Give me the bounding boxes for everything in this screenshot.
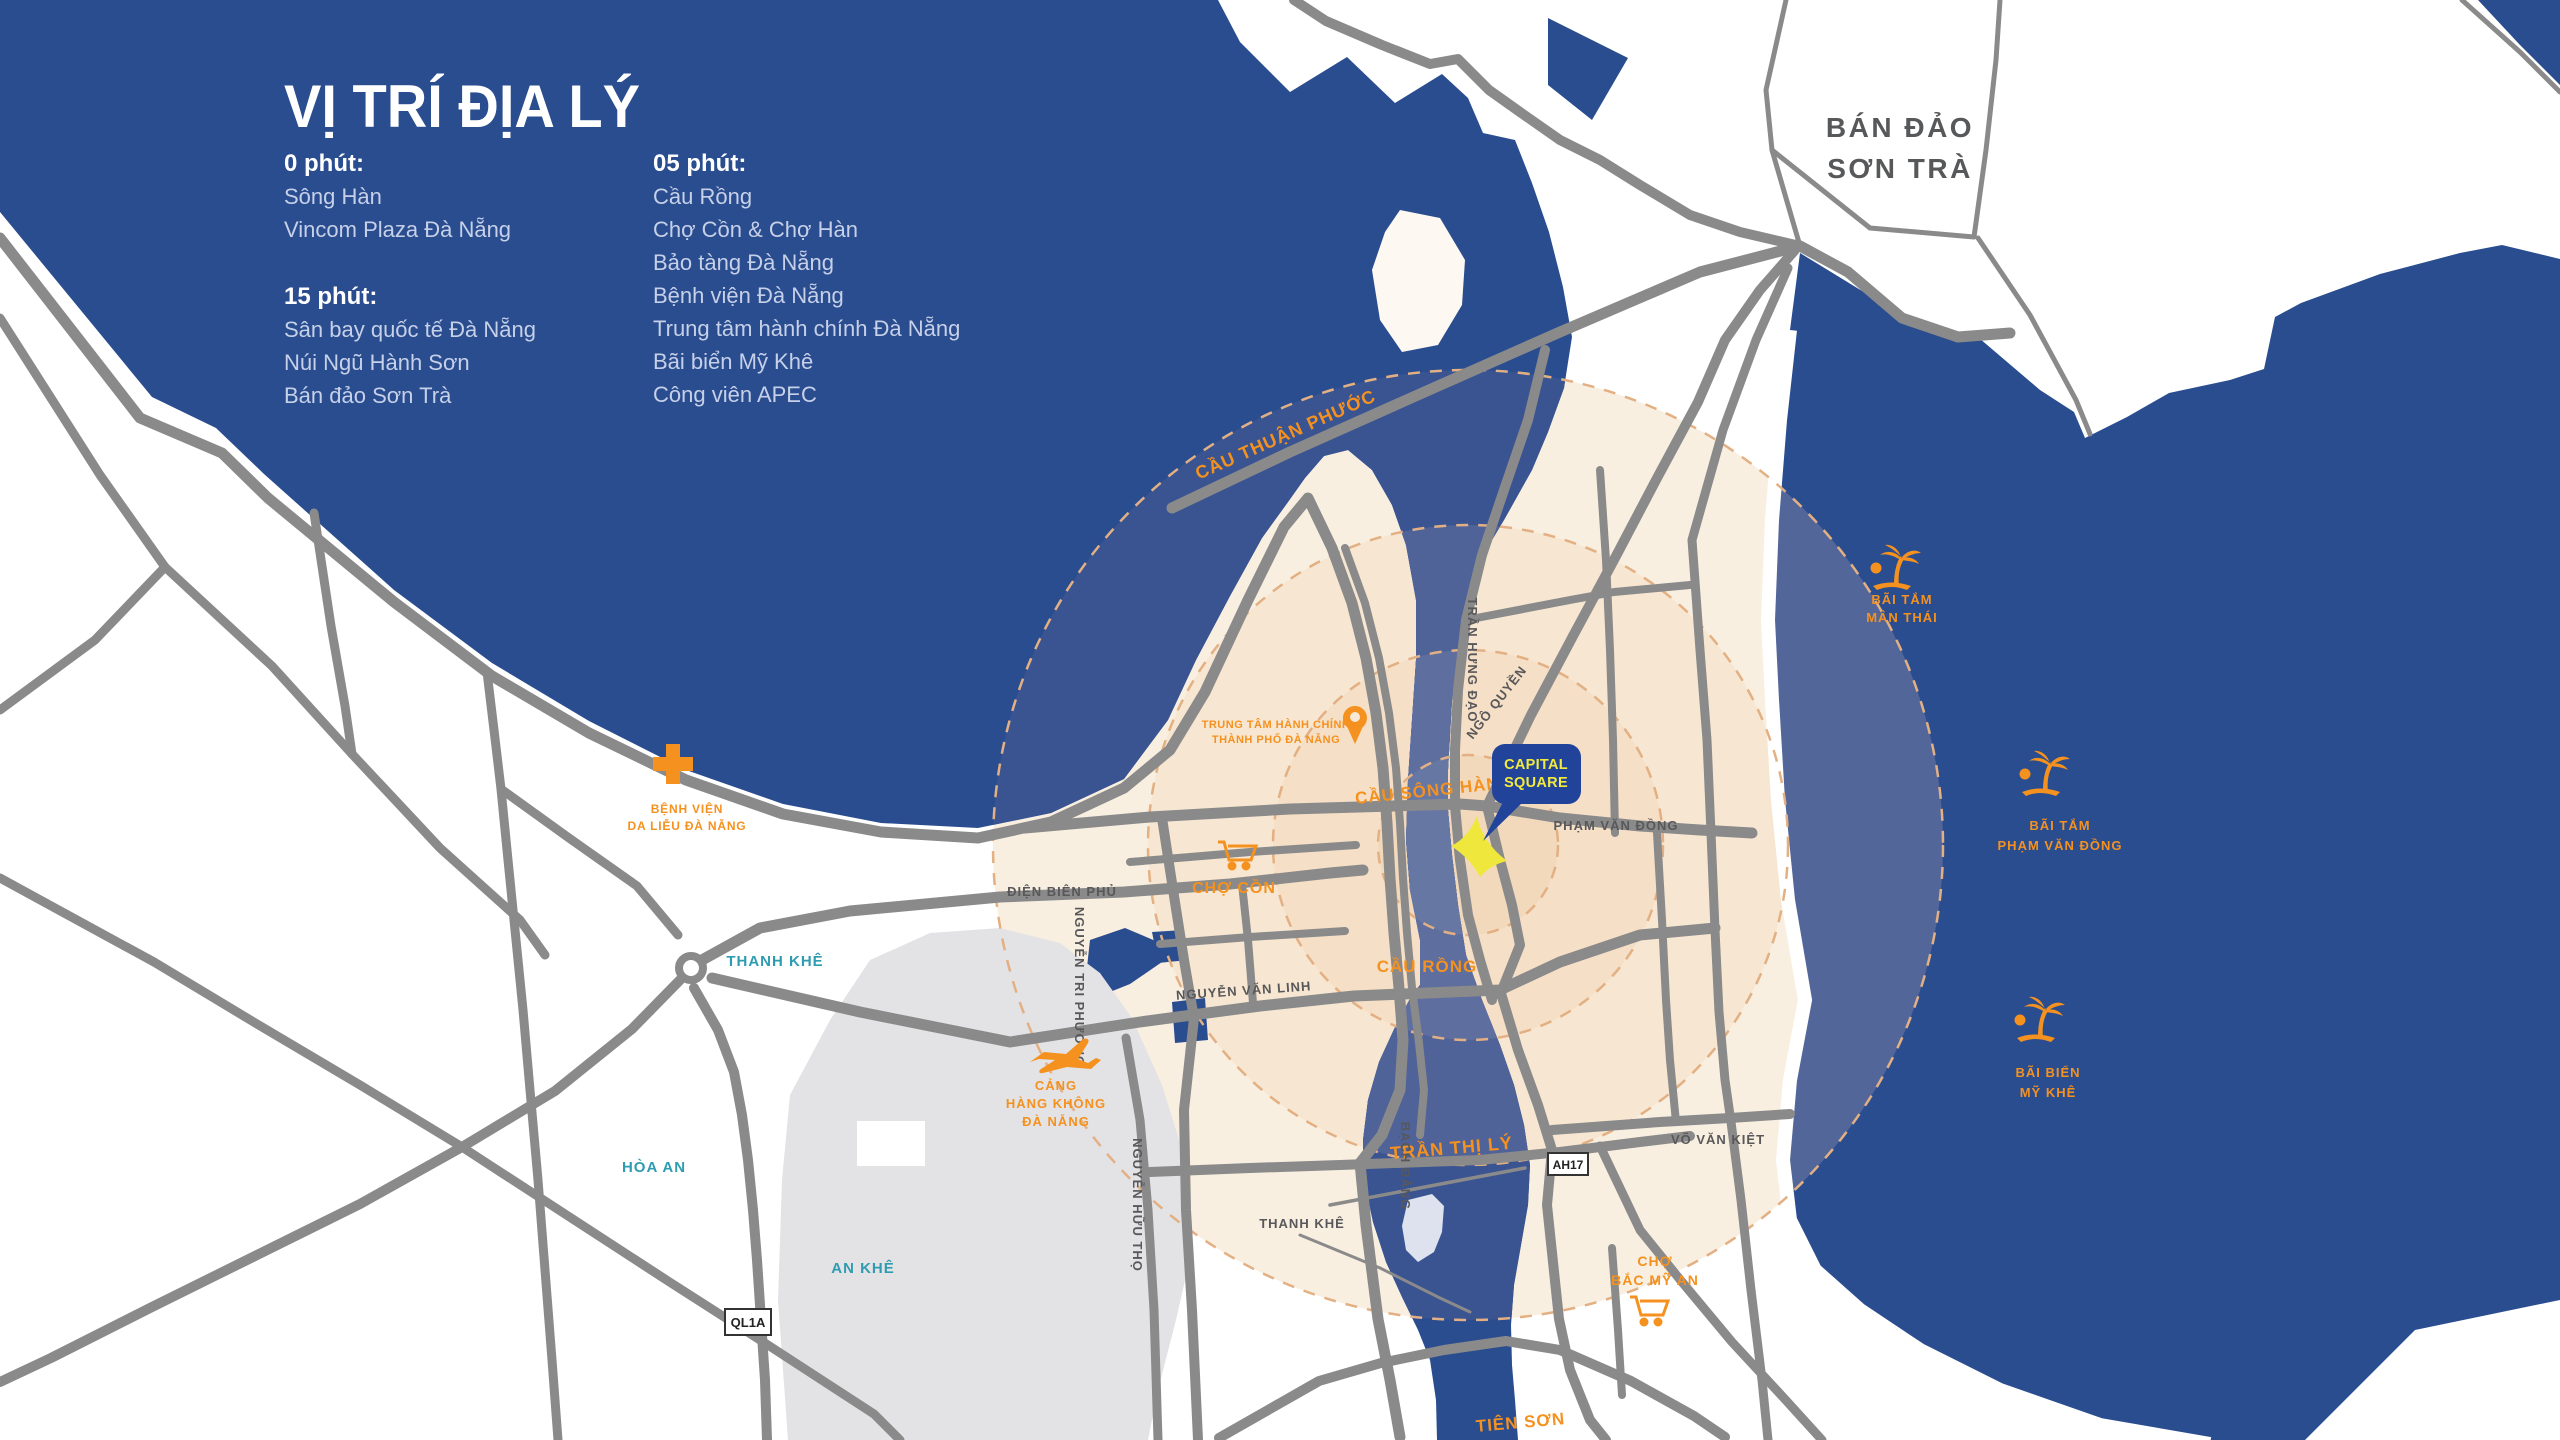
- svg-text:PHẠM VĂN ĐỒNG: PHẠM VĂN ĐỒNG: [1554, 818, 1679, 833]
- svg-text:Bệnh viện Đà Nẵng: Bệnh viện Đà Nẵng: [653, 283, 844, 308]
- svg-text:15 phút:: 15 phút:: [284, 283, 377, 310]
- svg-text:Sông Hàn: Sông Hàn: [284, 184, 382, 209]
- svg-text:SƠN TRÀ: SƠN TRÀ: [1827, 153, 1973, 184]
- svg-text:VỊ TRÍ ĐỊA LÝ: VỊ TRÍ ĐỊA LÝ: [284, 73, 640, 140]
- svg-text:Sân bay quốc tế Đà Nẵng: Sân bay quốc tế Đà Nẵng: [284, 317, 536, 342]
- svg-text:NGUYỄN HỮU THỌ: NGUYỄN HỮU THỌ: [1130, 1138, 1145, 1272]
- svg-text:CẦU RỒNG: CẦU RỒNG: [1377, 957, 1478, 976]
- svg-text:MỸ KHÊ: MỸ KHÊ: [2020, 1085, 2077, 1100]
- svg-text:HÀNG KHÔNG: HÀNG KHÔNG: [1006, 1096, 1106, 1111]
- svg-text:BÃI TẮM: BÃI TẮM: [1871, 592, 1932, 607]
- svg-text:BẠCH ĐẰNG: BẠCH ĐẰNG: [1398, 1122, 1413, 1210]
- svg-text:DA LIỄU ĐÀ NẴNG: DA LIỄU ĐÀ NẴNG: [628, 818, 747, 833]
- svg-text:BỆNH VIỆN: BỆNH VIỆN: [651, 801, 724, 816]
- svg-text:Bảo tàng Đà Nẵng: Bảo tàng Đà Nẵng: [653, 250, 834, 275]
- svg-text:PHẠM VĂN ĐỒNG: PHẠM VĂN ĐỒNG: [1998, 838, 2123, 853]
- svg-text:HÒA AN: HÒA AN: [622, 1158, 686, 1176]
- svg-text:BẮC MỸ AN: BẮC MỸ AN: [1611, 1271, 1699, 1288]
- svg-text:THANH KHÊ: THANH KHÊ: [1259, 1216, 1345, 1231]
- svg-text:TRẦN HƯNG ĐẠO: TRẦN HƯNG ĐẠO: [1465, 598, 1480, 723]
- svg-text:TRUNG TÂM HÀNH CHÍNH: TRUNG TÂM HÀNH CHÍNH: [1202, 718, 1351, 731]
- svg-text:AH17: AH17: [1553, 1158, 1584, 1172]
- svg-text:05 phút:: 05 phút:: [653, 150, 746, 177]
- svg-text:SQUARE: SQUARE: [1504, 775, 1568, 791]
- svg-text:Núi Ngũ Hành Sơn: Núi Ngũ Hành Sơn: [284, 350, 470, 375]
- svg-text:Cầu Rồng: Cầu Rồng: [653, 184, 752, 209]
- svg-text:ĐÀ NẴNG: ĐÀ NẴNG: [1022, 1114, 1090, 1129]
- svg-text:THÀNH PHỐ ĐÀ NẴNG: THÀNH PHỐ ĐÀ NẴNG: [1212, 732, 1340, 746]
- svg-text:Chợ Cồn & Chợ Hàn: Chợ Cồn & Chợ Hàn: [653, 217, 858, 242]
- svg-text:THANH KHÊ: THANH KHÊ: [726, 952, 823, 970]
- svg-text:MÂN THÁI: MÂN THÁI: [1866, 610, 1938, 625]
- svg-text:BÃI BIỂN: BÃI BIỂN: [2015, 1065, 2080, 1080]
- svg-text:CẢNG: CẢNG: [1035, 1078, 1077, 1093]
- svg-text:ĐIỆN BIÊN PHỦ: ĐIỆN BIÊN PHỦ: [1007, 884, 1117, 899]
- svg-text:Vincom Plaza Đà Nẵng: Vincom Plaza Đà Nẵng: [284, 217, 511, 242]
- svg-text:0 phút:: 0 phút:: [284, 150, 364, 177]
- svg-text:AN KHÊ: AN KHÊ: [831, 1259, 895, 1277]
- svg-text:Bán đảo Sơn Trà: Bán đảo Sơn Trà: [284, 383, 452, 408]
- svg-text:CAPITAL: CAPITAL: [1504, 757, 1568, 773]
- svg-text:CHỢ CỒN: CHỢ CỒN: [1192, 878, 1276, 897]
- svg-text:BÁN ĐẢO: BÁN ĐẢO: [1826, 111, 1974, 143]
- svg-text:BÃI TẮM: BÃI TẮM: [2029, 818, 2090, 833]
- svg-text:VÕ VĂN KIỆT: VÕ VĂN KIỆT: [1671, 1132, 1765, 1147]
- svg-text:QL1A: QL1A: [731, 1315, 766, 1330]
- svg-text:Trung tâm hành chính Đà Nẵng: Trung tâm hành chính Đà Nẵng: [653, 316, 960, 341]
- svg-text:Công viên APEC: Công viên APEC: [653, 382, 817, 407]
- svg-text:Bãi biển Mỹ Khê: Bãi biển Mỹ Khê: [653, 349, 813, 374]
- svg-text:CHỢ: CHỢ: [1637, 1253, 1672, 1269]
